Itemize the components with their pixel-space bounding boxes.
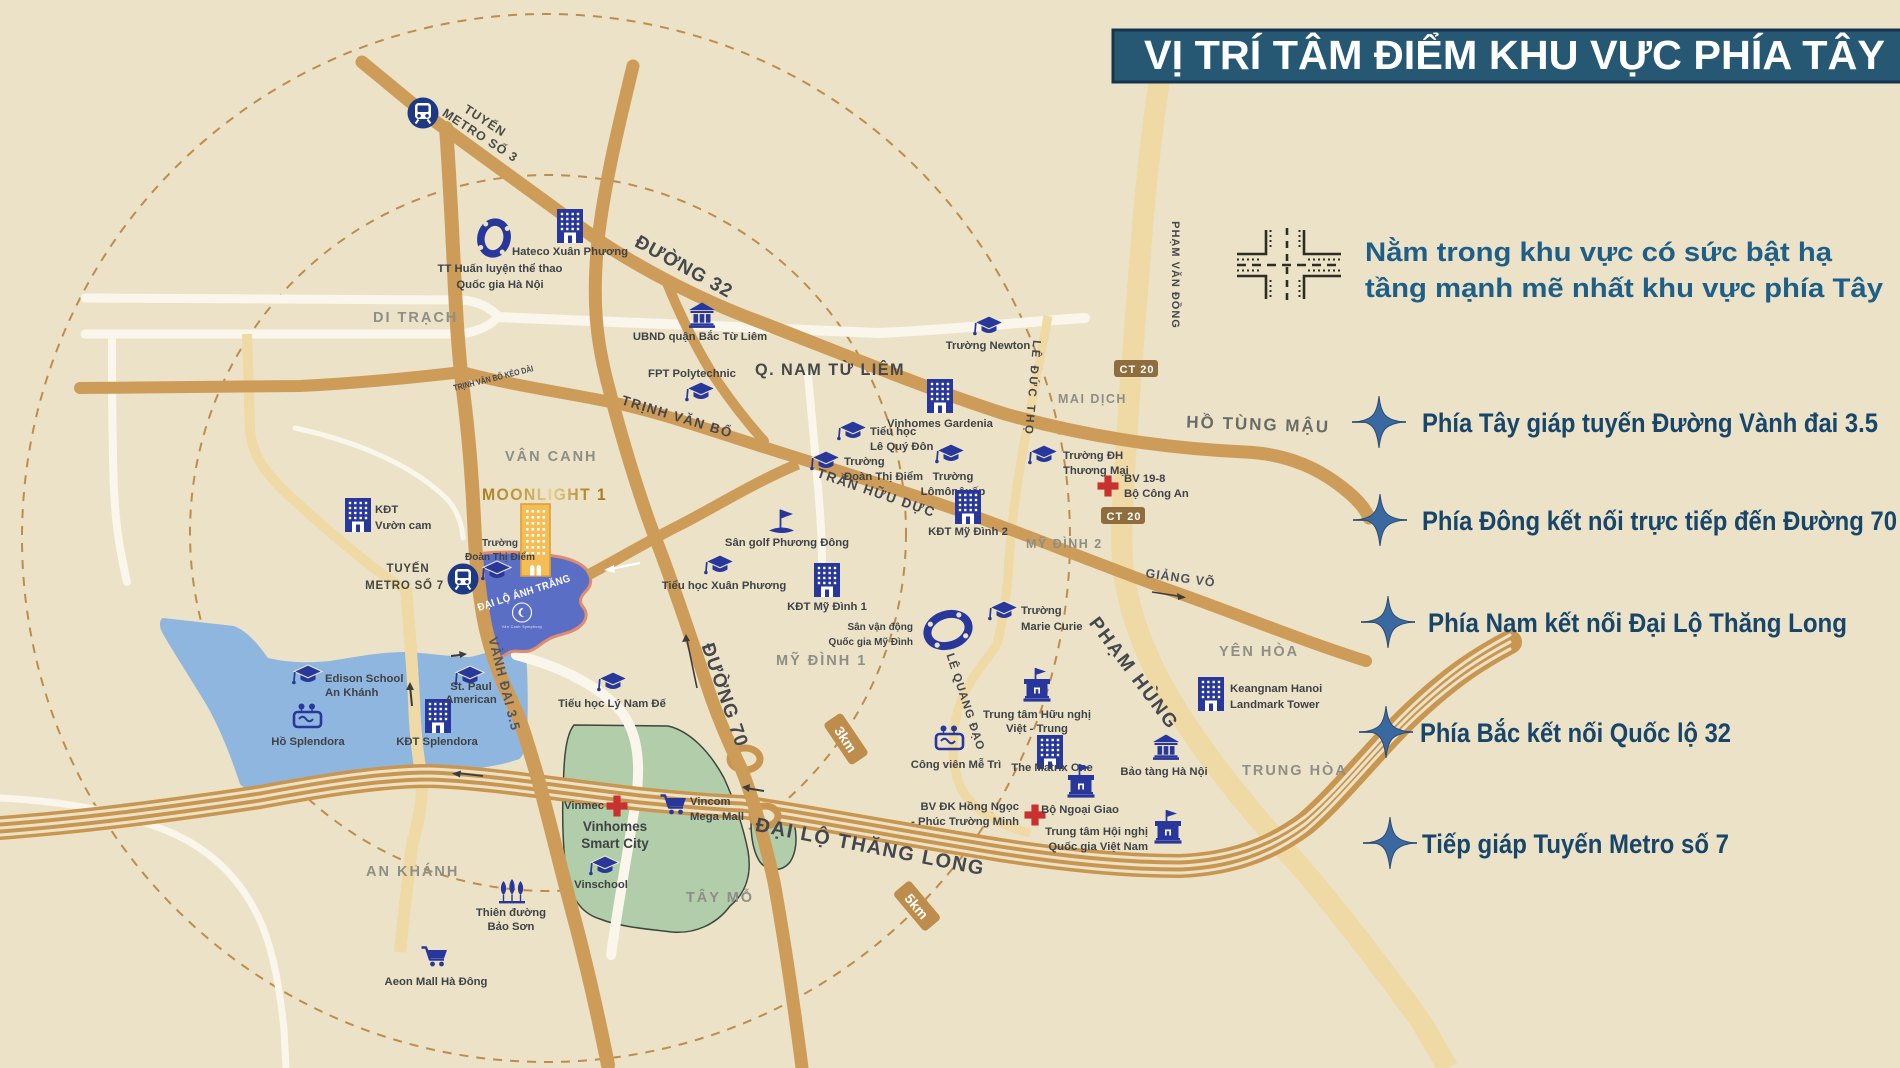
svg-text:MOONLIGHT 1: MOONLIGHT 1 — [482, 485, 607, 504]
svg-text:DI TRẠCH: DI TRẠCH — [373, 310, 458, 326]
svg-text:TRUNG HÒA: TRUNG HÒA — [1242, 761, 1348, 779]
svg-text:Bộ Công An: Bộ Công An — [1124, 488, 1189, 500]
svg-text:Vân Canh Symphony: Vân Canh Symphony — [502, 625, 543, 629]
svg-text:AN KHÁNH: AN KHÁNH — [366, 863, 459, 880]
svg-text:Sân vận động: Sân vận động — [847, 622, 913, 633]
svg-text:MỸ ĐÌNH 1: MỸ ĐÌNH 1 — [776, 651, 867, 669]
svg-text:PHẠM VĂN ĐỒNG: PHẠM VĂN ĐỒNG — [1169, 221, 1182, 329]
svg-text:Hồ Splendora: Hồ Splendora — [271, 736, 345, 748]
svg-text:YÊN HÒA: YÊN HÒA — [1219, 642, 1299, 660]
svg-text:Tiểu học Xuân Phương: Tiểu học Xuân Phương — [662, 580, 787, 592]
svg-text:Vinhomes: Vinhomes — [583, 819, 647, 834]
svg-text:Q. NAM TỪ LIÊM: Q. NAM TỪ LIÊM — [755, 360, 905, 379]
svg-text:Sân golf Phương Đông: Sân golf Phương Đông — [725, 537, 849, 549]
svg-text:Trường ĐH: Trường ĐH — [1063, 450, 1123, 462]
svg-text:Phía Bắc kết nối Quốc lộ 32: Phía Bắc kết nối Quốc lộ 32 — [1420, 717, 1731, 748]
svg-text:St. Paul: St. Paul — [450, 681, 491, 693]
svg-text:Phía Nam kết nối Đại Lộ Thăng: Phía Nam kết nối Đại Lộ Thăng Long — [1428, 608, 1847, 638]
svg-text:Bảo Sơn: Bảo Sơn — [488, 921, 535, 933]
svg-text:FPT Polytechnic: FPT Polytechnic — [648, 368, 736, 380]
svg-text:Tiểu học: Tiểu học — [870, 426, 916, 438]
svg-text:Aeon Mall Hà Đông: Aeon Mall Hà Đông — [385, 976, 488, 988]
svg-text:Quốc gia Việt Nam: Quốc gia Việt Nam — [1048, 841, 1148, 853]
svg-text:Mega Mall: Mega Mall — [690, 811, 744, 823]
svg-text:Trường: Trường — [1021, 605, 1062, 617]
svg-text:METRO SỐ 7: METRO SỐ 7 — [365, 578, 444, 592]
svg-text:Phía Đông kết nối trực tiếp đế: Phía Đông kết nối trực tiếp đến Đường 70 — [1422, 506, 1897, 536]
svg-text:TT Huấn luyện thể thao: TT Huấn luyện thể thao — [438, 263, 563, 275]
svg-text:Thiên đường: Thiên đường — [476, 907, 546, 919]
svg-text:Trường: Trường — [933, 471, 974, 483]
svg-text:KĐT: KĐT — [375, 504, 398, 516]
svg-text:KĐT Mỹ Đình 1: KĐT Mỹ Đình 1 — [787, 601, 867, 613]
svg-text:Trung tâm Hữu nghị: Trung tâm Hữu nghị — [983, 709, 1091, 721]
svg-text:VỊ TRÍ TÂM ĐIỂM KHU VỰC PHÍA T: VỊ TRÍ TÂM ĐIỂM KHU VỰC PHÍA TÂY — [1144, 31, 1885, 78]
svg-text:Phía Tây giáp tuyến Đường Vành: Phía Tây giáp tuyến Đường Vành đai 3.5 — [1422, 408, 1878, 438]
svg-text:Công viên Mễ Trì: Công viên Mễ Trì — [911, 758, 1001, 771]
svg-text:Keangnam Hanoi: Keangnam Hanoi — [1230, 683, 1322, 695]
svg-text:American: American — [445, 694, 497, 706]
svg-text:Đoàn Thị Điểm: Đoàn Thị Điểm — [844, 471, 923, 483]
svg-text:Trường: Trường — [482, 538, 518, 549]
svg-text:MỸ ĐÌNH 2: MỸ ĐÌNH 2 — [1026, 536, 1103, 551]
svg-text:Việt - Trung: Việt - Trung — [1006, 723, 1068, 735]
svg-text:Vinmec: Vinmec — [564, 800, 604, 812]
svg-text:TÂY MỖ: TÂY MỖ — [686, 888, 754, 906]
svg-text:UBND quận Bắc Từ Liêm: UBND quận Bắc Từ Liêm — [633, 330, 767, 343]
svg-text:CT 20: CT 20 — [1107, 511, 1142, 523]
svg-text:VÂN CANH: VÂN CANH — [505, 447, 598, 465]
svg-text:CT 20: CT 20 — [1120, 364, 1155, 376]
svg-text:TUYẾN: TUYẾN — [387, 562, 430, 575]
svg-text:MAI DỊCH: MAI DỊCH — [1058, 392, 1127, 406]
svg-text:Vinschool: Vinschool — [574, 879, 628, 891]
svg-text:- Phúc Trường Minh: - Phúc Trường Minh — [911, 816, 1019, 828]
svg-text:Vincom: Vincom — [690, 796, 731, 808]
svg-text:BV 19-8: BV 19-8 — [1124, 473, 1165, 485]
svg-text:Edison School: Edison School — [325, 673, 403, 685]
svg-text:Marie Curie: Marie Curie — [1021, 621, 1083, 633]
svg-text:Trung tâm Hội nghị: Trung tâm Hội nghị — [1045, 826, 1148, 838]
svg-text:Bộ Ngoại Giao: Bộ Ngoại Giao — [1041, 804, 1119, 816]
svg-text:Hateco Xuân Phương: Hateco Xuân Phương — [512, 246, 628, 258]
svg-text:An Khánh: An Khánh — [325, 687, 378, 699]
svg-text:Lê Quý Đôn: Lê Quý Đôn — [870, 441, 933, 453]
svg-text:Trường Newton: Trường Newton — [946, 340, 1031, 352]
svg-text:Trường: Trường — [844, 456, 885, 468]
svg-text:Đoàn Thị Điểm: Đoàn Thị Điểm — [465, 551, 535, 563]
svg-text:Nằm trong khu vực có sức bật h: Nằm trong khu vực có sức bật hạ — [1365, 236, 1833, 267]
svg-text:KĐT Splendora: KĐT Splendora — [396, 736, 478, 748]
svg-text:Tiếp giáp Tuyến Metro số 7: Tiếp giáp Tuyến Metro số 7 — [1422, 829, 1729, 859]
svg-text:tầng mạnh mẽ nhất khu vực phía: tầng mạnh mẽ nhất khu vực phía Tây — [1365, 273, 1883, 303]
svg-text:Tiếu học Lý Nam Đế: Tiếu học Lý Nam Đế — [558, 698, 666, 710]
svg-text:Smart City: Smart City — [581, 836, 649, 851]
svg-text:Vườn cam: Vườn cam — [375, 520, 431, 532]
svg-text:Quốc gia Mỹ Đình: Quốc gia Mỹ Đình — [829, 636, 913, 648]
svg-text:Landmark Tower: Landmark Tower — [1230, 699, 1320, 711]
svg-text:KĐT Mỹ Đình 2: KĐT Mỹ Đình 2 — [928, 526, 1008, 538]
svg-text:Thương Mại: Thương Mại — [1063, 465, 1129, 477]
svg-text:Bảo tàng Hà Nội: Bảo tàng Hà Nội — [1120, 766, 1207, 778]
svg-text:BV ĐK Hồng Ngọc: BV ĐK Hồng Ngọc — [920, 801, 1019, 813]
svg-text:Quốc gia Hà Nội: Quốc gia Hà Nội — [456, 279, 543, 291]
